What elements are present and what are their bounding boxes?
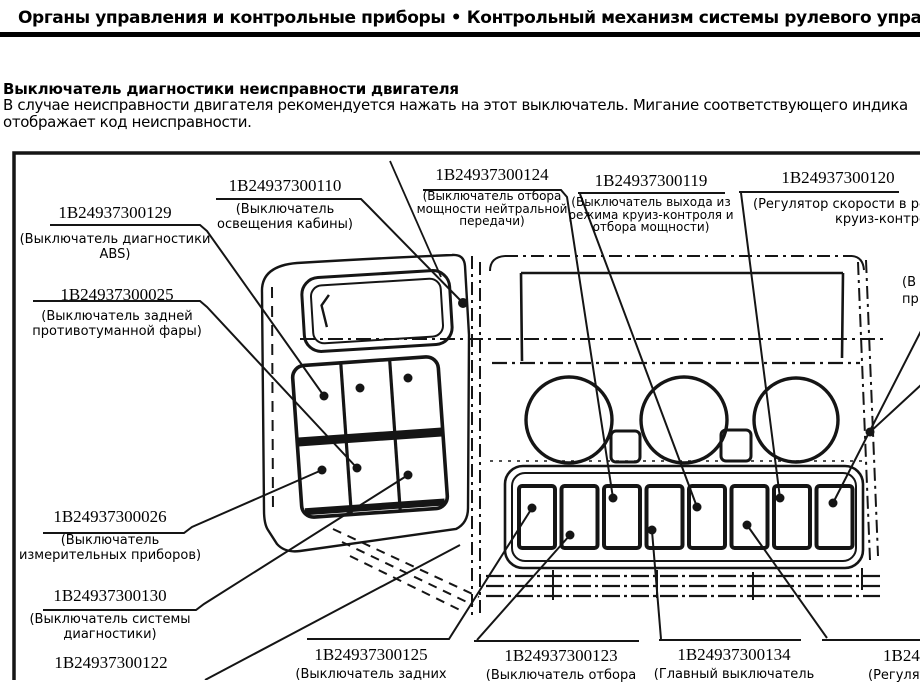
part-number: 1В24937300120 <box>781 168 894 188</box>
part-number: 1В24937300026 <box>19 507 201 527</box>
part-number: 1В24937300124 <box>417 165 568 185</box>
part-number: 1В24937300130 <box>29 586 190 606</box>
part-number: 1В24937300129 <box>20 203 211 223</box>
callout-025: 1В24937300025 (Выключатель задней против… <box>32 285 202 339</box>
part-number: 1В24937300119 <box>568 171 733 191</box>
body-text-line: отображает код неисправности. <box>3 113 252 131</box>
header-rule <box>0 32 920 37</box>
callout-cut-right-bottom: 1В24 (Регулято <box>883 646 920 683</box>
gauge-cluster <box>526 377 838 463</box>
callout-123: 1В24937300123 (Выключатель отбора <box>486 646 636 683</box>
callout-122: 1В24937300122 <box>54 653 167 673</box>
dome-light-opening <box>301 270 453 353</box>
callout-026: 1В24937300026 (Выключатель измерительных… <box>19 507 201 563</box>
callout-119: 1В24937300119 (Выключатель выхода из реж… <box>568 171 733 234</box>
dash-switch-row <box>505 466 863 568</box>
page-title: Органы управления и контрольные приборы … <box>18 8 920 28</box>
body-text-line: В случае неисправности двигателя рекомен… <box>3 96 908 114</box>
callout-124: 1В24937300124 (Выключатель отбора мощнос… <box>417 165 568 228</box>
callout-129: 1В24937300129 (Выключатель диагностики A… <box>20 203 211 262</box>
part-number: 1В24937300134 <box>654 645 815 665</box>
callout-125: 1В24937300125 (Выключатель задних <box>295 645 446 682</box>
part-number: 1В24937300122 <box>54 653 167 673</box>
instrument-hood <box>492 273 860 363</box>
callout-120: 1В24937300120 <box>781 168 894 188</box>
part-number: 1В24937300123 <box>486 646 636 666</box>
callout-130: 1В24937300130 (Выключатель системы диагн… <box>29 586 190 642</box>
part-number: 1В24937300125 <box>295 645 446 665</box>
manual-page: { "header": { "title": "Органы управлени… <box>0 0 920 680</box>
part-number: 1В24937300025 <box>32 285 202 305</box>
part-number: 1В24 <box>883 646 920 666</box>
console-switch-panel <box>292 356 448 518</box>
callout-110: 1В24937300110 (Выключатель освещения каб… <box>217 176 353 232</box>
part-number: 1В24937300110 <box>217 176 353 196</box>
callout-120-desc: (Регулятор скорости в режи круиз-контрол… <box>753 197 920 227</box>
callout-cut-right-middle: (В пр <box>902 274 919 308</box>
callout-134: 1В24937300134 (Главный выключатель <box>654 645 815 682</box>
